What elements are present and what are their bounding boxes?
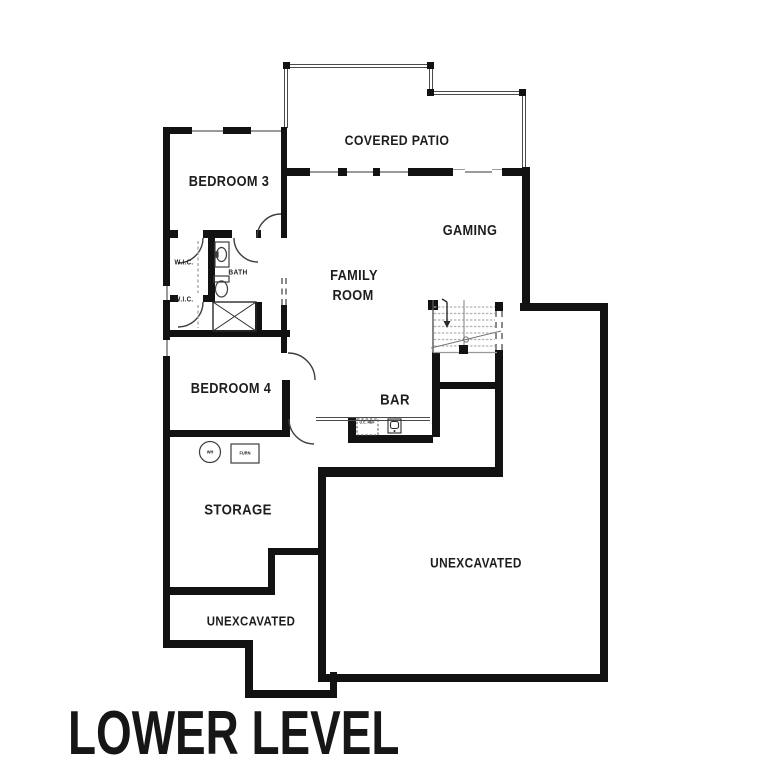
room-label-family: FAMILY <box>330 268 378 284</box>
room-label-bath: BATH <box>228 268 247 277</box>
shower-icon <box>213 302 256 331</box>
door-arc <box>257 214 281 238</box>
toilet-icon <box>214 276 229 297</box>
sink-icon <box>215 242 229 267</box>
bar-sink-icon <box>388 419 401 433</box>
stairs <box>431 299 501 354</box>
door-arc <box>234 238 258 262</box>
room-label-unexcavated-right: UNEXCAVATED <box>430 556 522 571</box>
room-label-gaming: GAMING <box>443 223 498 239</box>
room-label-unexcavated-left: UNEXCAVATED <box>207 614 295 629</box>
room-label-bedroom4: BEDROOM 4 <box>191 381 271 397</box>
page-title: LOWER LEVEL <box>68 703 399 765</box>
door-arc <box>288 353 315 380</box>
floor-plan: COVERED PATIO BEDROOM 3 GAMING FAMILY RO… <box>0 0 768 768</box>
door-arc <box>178 302 203 327</box>
stair-newel <box>459 345 468 354</box>
fixture-label-wh: WH <box>207 450 214 455</box>
fixture-label-furn: FURN <box>240 451 251 456</box>
room-label-wic1: W.I.C. <box>175 260 194 267</box>
door-arc <box>289 419 314 444</box>
room-label-family-2: ROOM <box>332 288 373 304</box>
room-label-storage: STORAGE <box>204 502 271 519</box>
room-label-bar: BAR <box>380 392 410 409</box>
plan-details <box>0 0 768 768</box>
room-label-bedroom3: BEDROOM 3 <box>189 174 269 190</box>
room-label-wic2: W.I.C. <box>175 297 194 304</box>
fixture-label-uc-ref: U.C. REF <box>359 420 374 425</box>
room-label-covered-patio: COVERED PATIO <box>345 132 450 148</box>
